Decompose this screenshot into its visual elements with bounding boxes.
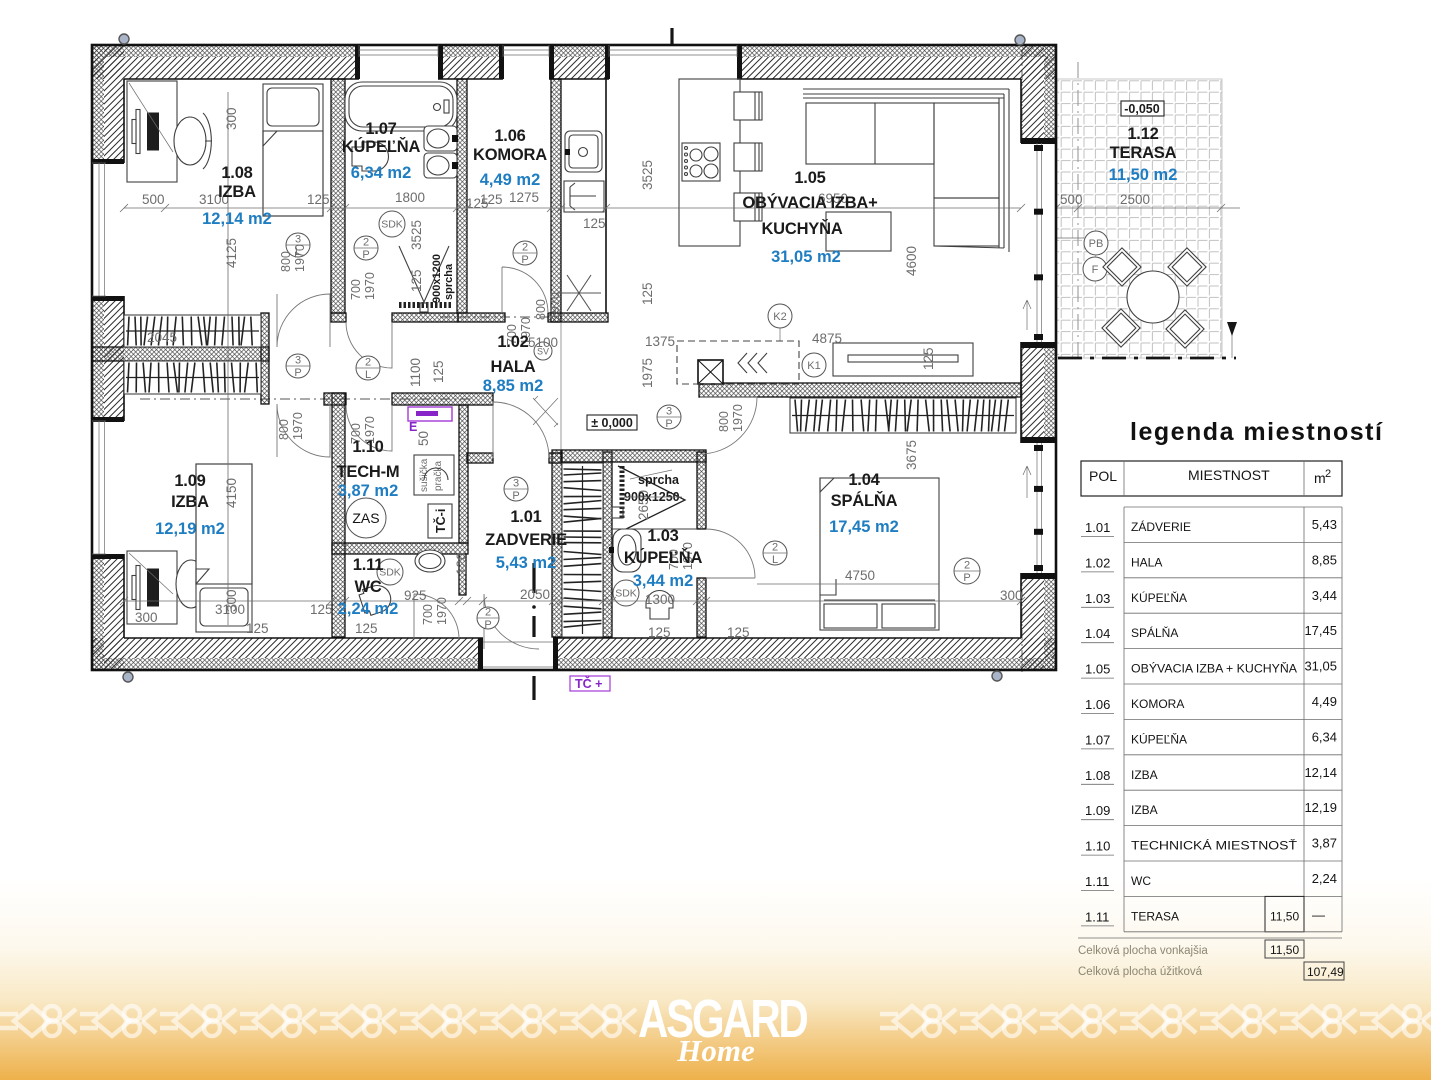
svg-text:IZBA: IZBA bbox=[1131, 768, 1158, 782]
svg-text:31,05: 31,05 bbox=[1304, 659, 1337, 674]
svg-text:11,50: 11,50 bbox=[1270, 909, 1299, 923]
svg-text:2,24: 2,24 bbox=[1312, 871, 1337, 886]
svg-text:4,49: 4,49 bbox=[1312, 694, 1337, 709]
svg-text:TERASA: TERASA bbox=[1131, 909, 1179, 923]
svg-text:1.07: 1.07 bbox=[1085, 732, 1110, 747]
svg-text:3,87: 3,87 bbox=[1312, 836, 1337, 851]
svg-text:KOMORA: KOMORA bbox=[1131, 697, 1184, 711]
svg-text:11,50: 11,50 bbox=[1270, 943, 1299, 957]
svg-text:6,34: 6,34 bbox=[1312, 729, 1337, 744]
svg-text:IZBA: IZBA bbox=[1131, 803, 1158, 817]
svg-text:12,14: 12,14 bbox=[1304, 765, 1337, 780]
svg-text:1.02: 1.02 bbox=[1085, 555, 1110, 570]
svg-text:MIESTNOST: MIESTNOST bbox=[1188, 467, 1270, 483]
svg-text:1.03: 1.03 bbox=[1085, 591, 1110, 606]
svg-text:WC: WC bbox=[1131, 874, 1151, 888]
svg-text:HALA: HALA bbox=[1131, 555, 1162, 569]
svg-text:1.06: 1.06 bbox=[1085, 697, 1110, 712]
svg-text:Celková plocha úžitková: Celková plocha úžitková bbox=[1078, 966, 1203, 978]
svg-text:SPÁLŇA: SPÁLŇA bbox=[1131, 625, 1178, 640]
svg-text:17,45: 17,45 bbox=[1304, 623, 1337, 638]
svg-text:3,44: 3,44 bbox=[1312, 588, 1337, 603]
svg-text:1.05: 1.05 bbox=[1085, 662, 1110, 677]
svg-text:legenda miestností: legenda miestností bbox=[1130, 418, 1383, 446]
svg-text:5,43: 5,43 bbox=[1312, 517, 1337, 532]
svg-text:m: m bbox=[1314, 470, 1326, 486]
svg-text:1.01: 1.01 bbox=[1085, 520, 1110, 535]
svg-text:ZÁDVERIE: ZÁDVERIE bbox=[1131, 519, 1191, 534]
svg-text:KÚPEĽŇA: KÚPEĽŇA bbox=[1131, 731, 1187, 746]
svg-text:107,49: 107,49 bbox=[1307, 965, 1344, 979]
svg-text:12,19: 12,19 bbox=[1304, 800, 1337, 815]
svg-text:1.04: 1.04 bbox=[1085, 626, 1110, 641]
svg-text:1.08: 1.08 bbox=[1085, 768, 1110, 783]
svg-text:2: 2 bbox=[1325, 468, 1331, 480]
svg-text:1.11: 1.11 bbox=[1085, 909, 1109, 924]
svg-text:—: — bbox=[1312, 907, 1325, 922]
svg-text:8,85: 8,85 bbox=[1312, 552, 1337, 567]
svg-text:POL: POL bbox=[1089, 468, 1117, 484]
svg-text:1.10: 1.10 bbox=[1085, 839, 1110, 854]
svg-text:Celková plocha vonkajšia: Celková plocha vonkajšia bbox=[1078, 945, 1208, 957]
svg-text:1.09: 1.09 bbox=[1085, 803, 1110, 818]
svg-text:1.11: 1.11 bbox=[1085, 874, 1109, 889]
svg-text:OBÝVACIA IZBA + KUCHYŇA: OBÝVACIA IZBA + KUCHYŇA bbox=[1131, 661, 1297, 676]
svg-text:TECHNICKÁ MIESTNOSŤ: TECHNICKÁ MIESTNOSŤ bbox=[1131, 838, 1298, 853]
svg-text:KÚPEĽŇA: KÚPEĽŇA bbox=[1131, 590, 1187, 605]
